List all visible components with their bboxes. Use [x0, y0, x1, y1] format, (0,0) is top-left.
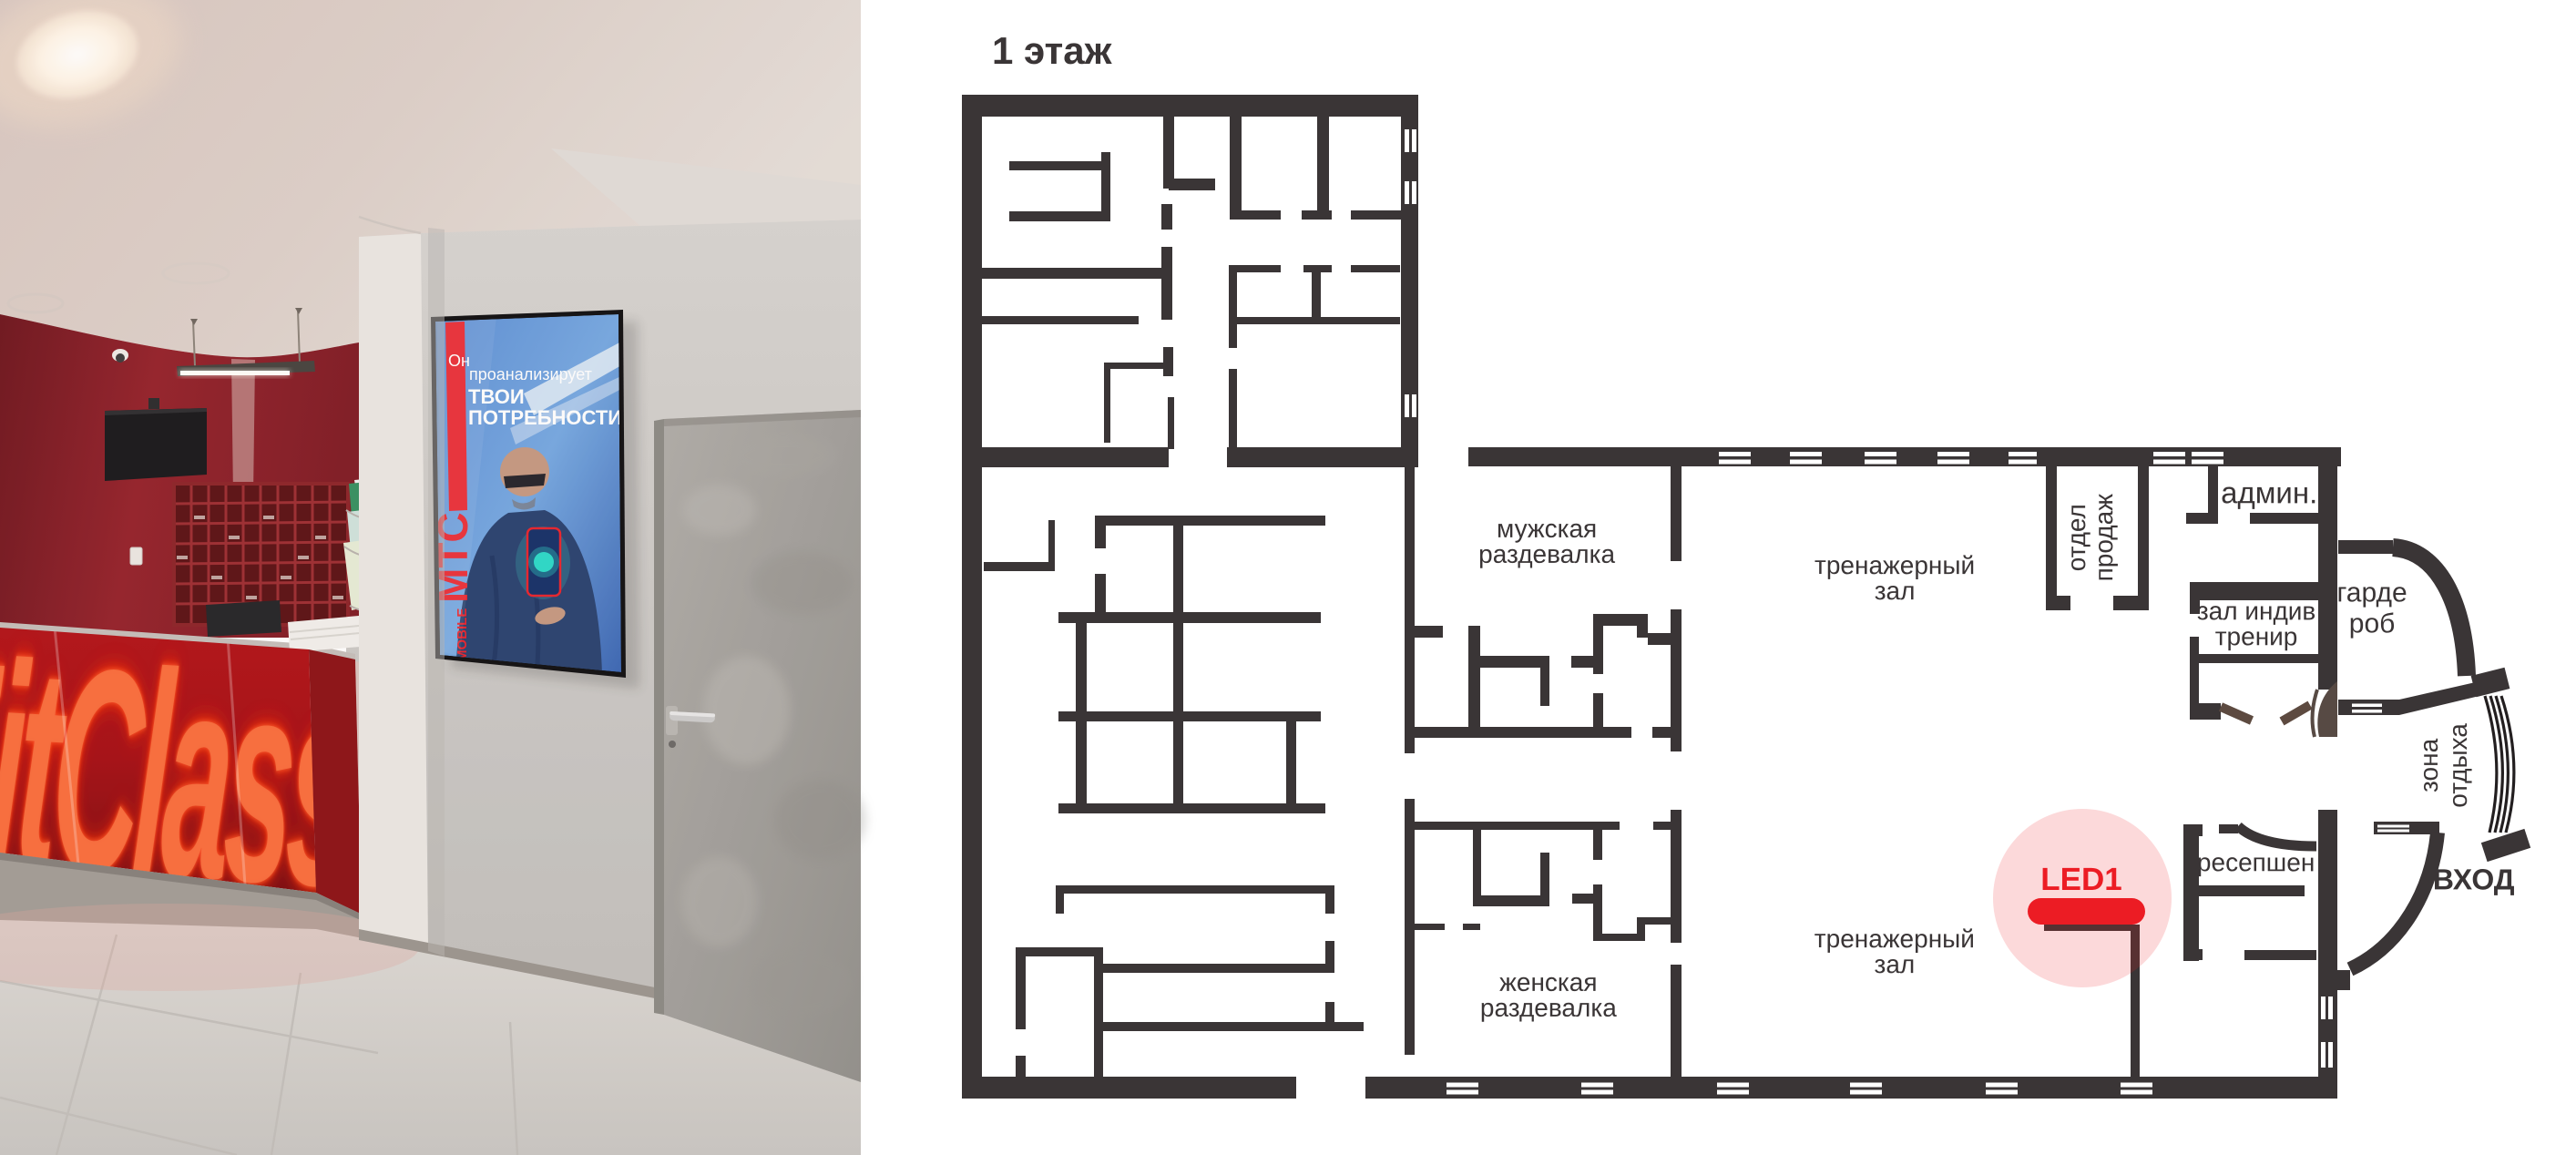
- svg-text:LED1: LED1: [2040, 862, 2121, 897]
- svg-text:женская: женская: [1499, 968, 1597, 997]
- svg-text:отдел: отдел: [2062, 504, 2090, 571]
- svg-text:тренир: тренир: [2215, 622, 2298, 650]
- svg-text:зал: зал: [1874, 950, 1915, 978]
- svg-text:отдыха: отдыха: [2444, 723, 2472, 808]
- svg-text:админ.: админ.: [2221, 475, 2317, 509]
- svg-text:зал: зал: [1875, 577, 1916, 605]
- svg-text:1 этаж: 1 этаж: [992, 29, 1113, 72]
- svg-text:мужская: мужская: [1497, 515, 1597, 543]
- svg-text:зона: зона: [2415, 738, 2443, 792]
- svg-text:роб: роб: [2349, 608, 2396, 639]
- svg-text:зал индив: зал индив: [2197, 597, 2316, 625]
- svg-text:раздевалка: раздевалка: [1478, 540, 1615, 568]
- svg-text:раздевалка: раздевалка: [1480, 994, 1617, 1022]
- svg-text:продаж: продаж: [2090, 494, 2118, 582]
- svg-text:ВХОД: ВХОД: [2433, 863, 2515, 895]
- svg-text:тренажерный: тренажерный: [1814, 925, 1975, 953]
- svg-text:тренажерный: тренажерный: [1814, 551, 1975, 579]
- svg-text:гарде: гарде: [2336, 577, 2407, 608]
- svg-text:ресепшен: ресепшен: [2197, 848, 2315, 876]
